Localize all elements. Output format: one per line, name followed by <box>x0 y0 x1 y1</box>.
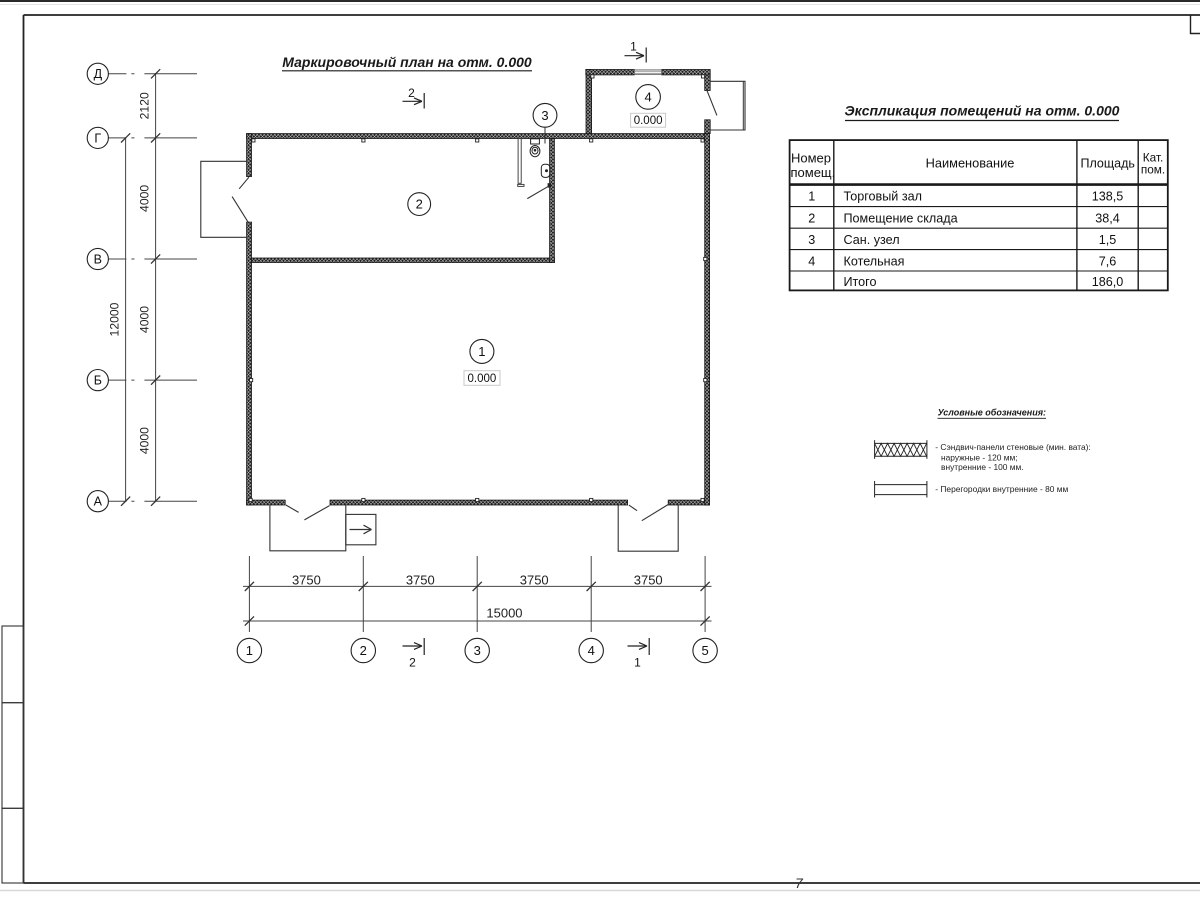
svg-text:- Сэндвич-панели стеновые (мин: - Сэндвич-панели стеновые (мин. вата): <box>935 442 1091 452</box>
svg-text:внутренние - 100 мм.: внутренние - 100 мм. <box>941 462 1024 472</box>
svg-text:2: 2 <box>409 656 416 670</box>
svg-text:7,6: 7,6 <box>1099 254 1117 268</box>
svg-text:12000: 12000 <box>108 302 122 336</box>
svg-text:0.000: 0.000 <box>468 373 497 385</box>
svg-text:Номер: Номер <box>791 151 831 166</box>
svg-text:Г: Г <box>94 131 101 145</box>
svg-text:3: 3 <box>474 643 481 658</box>
svg-text:2: 2 <box>360 643 367 658</box>
svg-text:0.000: 0.000 <box>634 115 663 127</box>
svg-text:1: 1 <box>808 190 815 204</box>
svg-text:1: 1 <box>630 40 637 54</box>
svg-text:1,5: 1,5 <box>1099 233 1117 247</box>
svg-text:помещ.: помещ. <box>791 165 836 180</box>
svg-text:3750: 3750 <box>634 572 663 587</box>
svg-text:4000: 4000 <box>138 185 152 212</box>
svg-text:2: 2 <box>808 211 815 225</box>
svg-text:4: 4 <box>644 90 651 105</box>
svg-text:Торговый зал: Торговый зал <box>844 190 922 204</box>
svg-text:1: 1 <box>478 344 485 359</box>
svg-text:Б: Б <box>94 374 102 388</box>
svg-text:3750: 3750 <box>520 572 549 587</box>
svg-text:4000: 4000 <box>138 427 152 454</box>
svg-text:1: 1 <box>246 643 253 658</box>
svg-text:Сан. узел: Сан. узел <box>844 233 900 247</box>
svg-text:А: А <box>94 495 103 509</box>
svg-text:1: 1 <box>634 656 641 670</box>
svg-text:4: 4 <box>808 254 815 268</box>
svg-text:7: 7 <box>795 875 804 891</box>
svg-text:В: В <box>94 252 102 266</box>
svg-text:3750: 3750 <box>292 572 321 587</box>
svg-text:2120: 2120 <box>138 92 152 119</box>
svg-text:4: 4 <box>588 643 595 658</box>
svg-text:Наименование: Наименование <box>926 156 1015 171</box>
svg-text:Экспликация помещений на отм.: Экспликация помещений на отм. 0.000 <box>845 103 1120 119</box>
svg-text:2: 2 <box>416 197 423 212</box>
svg-text:4000: 4000 <box>138 306 152 333</box>
svg-text:пом.: пом. <box>1141 163 1165 177</box>
svg-text:186,0: 186,0 <box>1092 275 1124 289</box>
svg-text:Итого: Итого <box>844 275 877 289</box>
svg-text:Условные обозначения:: Условные обозначения: <box>938 408 1046 418</box>
svg-text:- Перегородки внутренние - 80: - Перегородки внутренние - 80 мм <box>935 484 1068 494</box>
svg-text:15000: 15000 <box>486 606 522 621</box>
svg-text:Маркировочный план на отм. 0.0: Маркировочный план на отм. 0.000 <box>282 54 532 70</box>
svg-text:5: 5 <box>701 643 708 658</box>
svg-text:Котельная: Котельная <box>844 254 905 268</box>
svg-text:Площадь: Площадь <box>1080 157 1134 171</box>
svg-text:138,5: 138,5 <box>1092 190 1124 204</box>
svg-text:3750: 3750 <box>406 572 435 587</box>
svg-text:наружные - 120 мм;: наружные - 120 мм; <box>941 453 1018 463</box>
svg-text:3: 3 <box>808 233 815 247</box>
svg-text:Помещение склада: Помещение склада <box>844 211 958 225</box>
svg-text:38,4: 38,4 <box>1095 211 1120 225</box>
svg-text:Д: Д <box>94 67 103 81</box>
svg-text:3: 3 <box>541 108 548 123</box>
